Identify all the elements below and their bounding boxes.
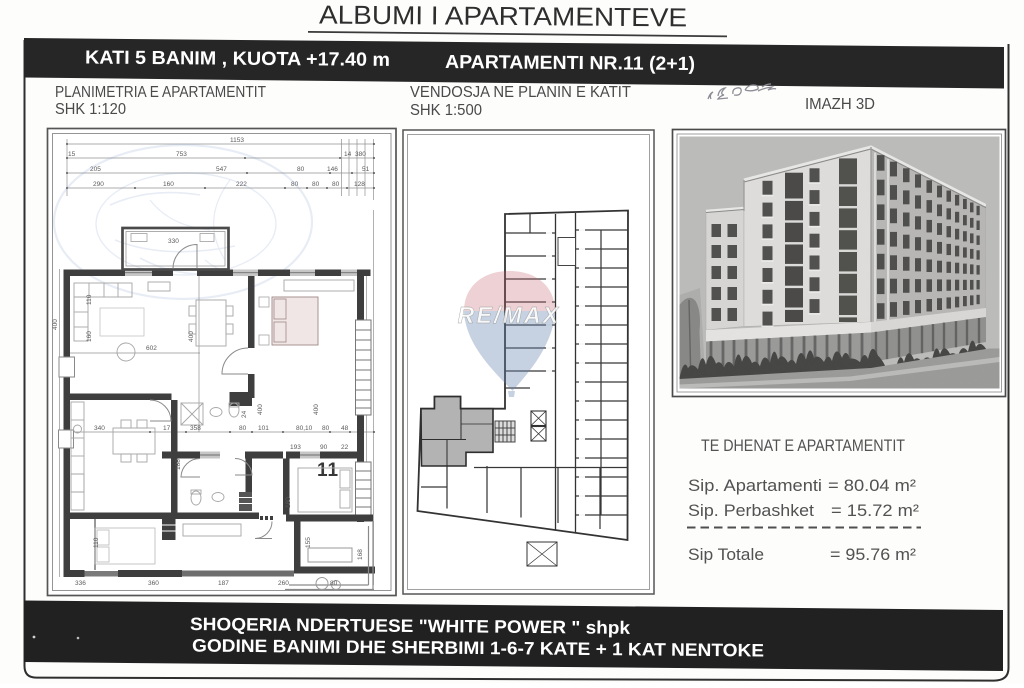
svg-text:380: 380 xyxy=(355,151,366,158)
svg-text:APARTAMENTI NR.11 (2+1): APARTAMENTI NR.11 (2+1) xyxy=(445,52,695,75)
svg-text:RE/MAX: RE/MAX xyxy=(458,302,561,328)
svg-text:260: 260 xyxy=(278,580,289,587)
svg-text:51: 51 xyxy=(362,166,370,173)
svg-text:128: 128 xyxy=(354,181,365,188)
svg-text:110: 110 xyxy=(93,537,100,548)
svg-text:80: 80 xyxy=(297,166,305,173)
svg-text:ALBUMI I APARTAMENTEVE: ALBUMI I APARTAMENTEVE xyxy=(319,0,687,32)
svg-text:SHOQERIA NDERTUESE "WHITE POWE: SHOQERIA NDERTUESE "WHITE POWER " shpk xyxy=(190,614,631,638)
svg-text:101: 101 xyxy=(258,425,269,432)
svg-text:187: 187 xyxy=(218,580,229,587)
svg-text:340: 340 xyxy=(94,425,105,432)
svg-text:753: 753 xyxy=(176,151,187,158)
svg-text:330: 330 xyxy=(168,238,179,245)
svg-text:= 15.72 m²: = 15.72 m² xyxy=(831,501,919,520)
svg-text:SHK 1:120: SHK 1:120 xyxy=(55,101,126,118)
svg-text:KATI 5 BANIM , KUOTA +17.40: KATI 5 BANIM , KUOTA +17.40 m xyxy=(85,48,390,71)
svg-text:80: 80 xyxy=(322,425,330,432)
svg-text:160: 160 xyxy=(163,181,174,188)
svg-text:PLANIMETRIA E APARTAMENTIT: PLANIMETRIA E APARTAMENTIT xyxy=(55,84,266,101)
svg-text:110: 110 xyxy=(86,294,93,305)
svg-text:80: 80 xyxy=(239,425,247,432)
svg-text:Sip. Perbashket: Sip. Perbashket xyxy=(688,501,814,520)
svg-text:180: 180 xyxy=(285,497,292,508)
svg-text:80,10: 80,10 xyxy=(296,425,313,432)
svg-text:400: 400 xyxy=(52,319,59,330)
svg-text:547: 547 xyxy=(216,166,227,173)
svg-text:90: 90 xyxy=(320,444,328,451)
svg-text:14: 14 xyxy=(344,151,352,158)
svg-text:360: 360 xyxy=(148,580,159,587)
svg-text:Sip. Apartamenti: Sip. Apartamenti xyxy=(688,476,822,495)
svg-text:11: 11 xyxy=(317,460,339,481)
svg-text:168: 168 xyxy=(357,549,364,560)
svg-text:17: 17 xyxy=(163,425,171,432)
svg-text:336: 336 xyxy=(75,580,86,587)
svg-text:VENDOSJA NE PLANIN E KATIT: VENDOSJA NE PLANIN E KATIT xyxy=(410,84,631,101)
svg-text:24: 24 xyxy=(241,410,248,418)
svg-text:400: 400 xyxy=(188,331,195,342)
svg-text:160: 160 xyxy=(86,331,93,342)
svg-text:188: 188 xyxy=(175,459,182,470)
svg-text:80: 80 xyxy=(332,181,340,188)
svg-text:358: 358 xyxy=(190,425,201,432)
svg-text:155: 155 xyxy=(305,537,312,548)
svg-text:146: 146 xyxy=(327,166,338,173)
svg-text:1153: 1153 xyxy=(230,137,244,144)
svg-text:IMAZH 3D: IMAZH 3D xyxy=(805,96,875,113)
svg-text:Sip Totale: Sip Totale xyxy=(688,545,764,564)
svg-text:= 95.76 m²: = 95.76 m² xyxy=(830,545,916,564)
svg-text:48: 48 xyxy=(341,425,349,432)
svg-text:290: 290 xyxy=(93,181,104,188)
svg-text:400: 400 xyxy=(257,404,264,415)
svg-text:SHK 1:500: SHK 1:500 xyxy=(410,102,482,119)
svg-text:= 80.04 m²: = 80.04 m² xyxy=(828,476,916,495)
svg-text:400: 400 xyxy=(313,404,320,415)
svg-text:80: 80 xyxy=(312,181,320,188)
svg-text:22: 22 xyxy=(341,444,349,451)
svg-text:15: 15 xyxy=(68,151,76,158)
svg-text:TE DHENAT E APARTAMENTIT: TE DHENAT E APARTAMENTIT xyxy=(701,436,905,455)
svg-text:193: 193 xyxy=(290,444,301,451)
svg-text:602: 602 xyxy=(146,345,157,352)
svg-text:80: 80 xyxy=(330,580,338,587)
